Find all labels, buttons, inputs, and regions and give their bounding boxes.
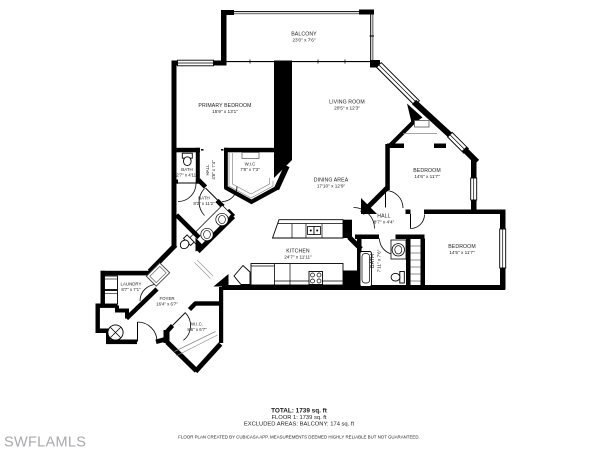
svg-text:8'7" x 4'4": 8'7" x 4'4" (374, 220, 395, 225)
svg-text:FOYER: FOYER (159, 296, 174, 301)
svg-text:BATH: BATH (181, 167, 192, 172)
svg-text:23'0" x 7'6": 23'0" x 7'6" (292, 38, 315, 43)
svg-text:HALL: HALL (205, 164, 210, 176)
svg-text:14'5" x 11'7": 14'5" x 11'7" (449, 250, 475, 255)
svg-text:BATH: BATH (370, 254, 376, 268)
svg-text:FLOOR 1: 1739 sq. ft: FLOOR 1: 1739 sq. ft (271, 415, 326, 421)
svg-text:8'2" x 11'2": 8'2" x 11'2" (193, 201, 215, 206)
svg-text:BATH: BATH (198, 196, 209, 201)
svg-text:SWFLAMLS: SWFLAMLS (4, 435, 86, 450)
svg-text:15'9" x 13'1": 15'9" x 13'1" (212, 109, 238, 114)
svg-text:16'4" x 6'7": 16'4" x 6'7" (156, 302, 178, 307)
svg-text:W.I.C: W.I.C (245, 162, 256, 167)
svg-text:W.I.C.: W.I.C. (191, 322, 203, 327)
svg-text:2'7" x 4'11": 2'7" x 4'11" (176, 173, 198, 178)
svg-text:24'7" x 11'11": 24'7" x 11'11" (284, 255, 312, 260)
svg-text:20'5" x 12'3": 20'5" x 12'3" (334, 106, 360, 111)
svg-text:7'8" x 7'3": 7'8" x 7'3" (240, 167, 260, 172)
svg-text:7'11" x 7'6": 7'11" x 7'6" (377, 249, 382, 272)
svg-text:17'10" x 12'9": 17'10" x 12'9" (317, 184, 346, 189)
svg-text:14'6" x 11'7": 14'6" x 11'7" (414, 174, 440, 179)
svg-text:8'6" x 6'7": 8'6" x 6'7" (187, 327, 207, 332)
svg-text:8'7" x 7'1": 8'7" x 7'1" (121, 287, 141, 292)
svg-text:TOTAL: 1739 sq. ft: TOTAL: 1739 sq. ft (271, 408, 328, 415)
svg-text:EXCLUDED AREAS: BALCONY: 174 s: EXCLUDED AREAS: BALCONY: 174 sq. ft (244, 422, 355, 428)
svg-text:4'8" x 7'4": 4'8" x 7'4" (211, 160, 216, 180)
svg-text:LAUNDRY: LAUNDRY (121, 282, 142, 287)
svg-text:FLOOR PLAN CREATED BY CUBICASA: FLOOR PLAN CREATED BY CUBICASA APP. MEAS… (178, 435, 419, 440)
